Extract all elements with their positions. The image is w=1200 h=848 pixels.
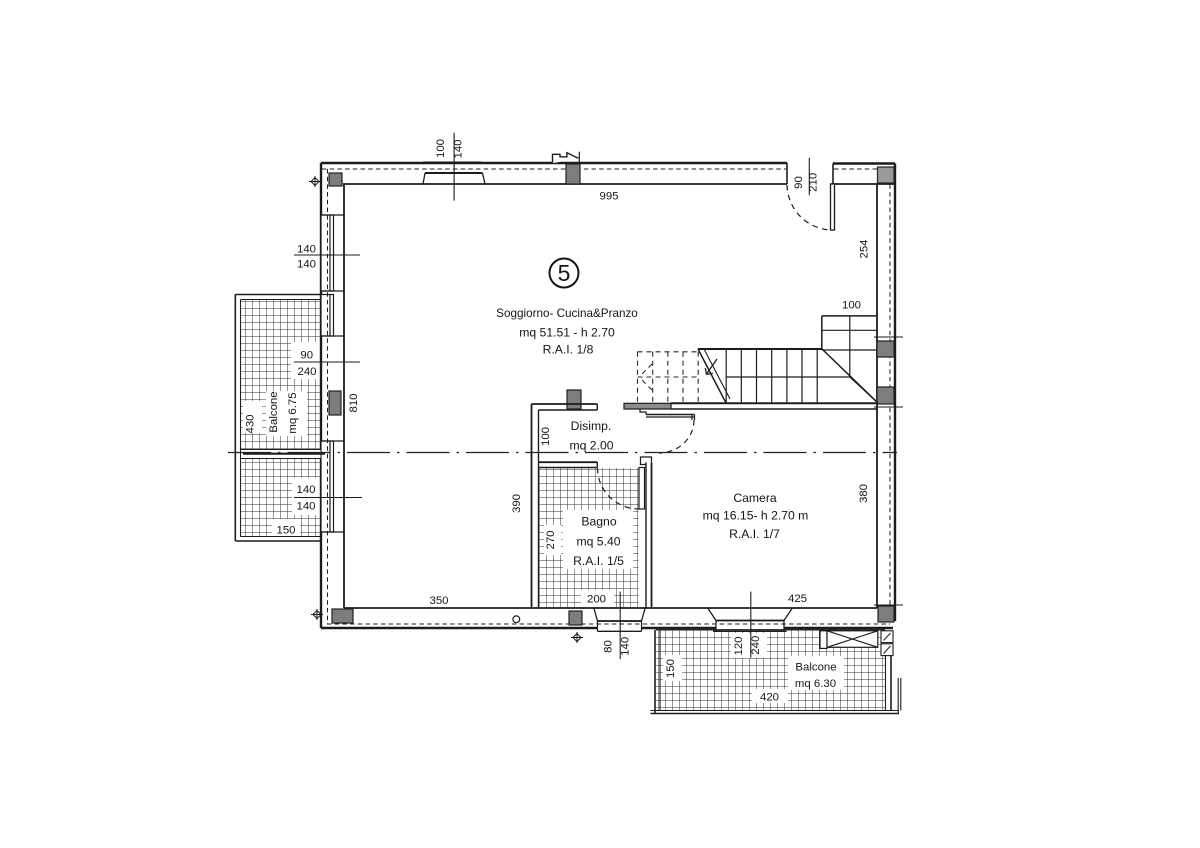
svg-text:240: 240: [750, 636, 762, 655]
svg-text:150: 150: [276, 525, 295, 537]
svg-text:R.A.I. 1/8: R.A.I. 1/8: [543, 343, 594, 357]
svg-text:mq 6.75: mq 6.75: [287, 392, 299, 433]
svg-text:mq 51.51 - h 2.70: mq 51.51 - h 2.70: [519, 326, 615, 340]
svg-text:Bagno: Bagno: [581, 515, 616, 529]
svg-text:380: 380: [858, 484, 870, 503]
svg-text:90: 90: [300, 350, 313, 362]
svg-text:210: 210: [808, 173, 820, 192]
svg-text:140: 140: [297, 244, 316, 256]
svg-text:Soggiorno- Cucina&Pranzo: Soggiorno- Cucina&Pranzo: [496, 307, 638, 320]
svg-text:R.A.I. 1/5: R.A.I. 1/5: [573, 554, 624, 568]
svg-text:140: 140: [620, 637, 632, 656]
svg-text:254: 254: [859, 239, 871, 258]
svg-text:100: 100: [435, 139, 447, 158]
svg-text:140: 140: [296, 484, 315, 496]
svg-text:270: 270: [545, 530, 557, 549]
svg-text:430: 430: [245, 414, 257, 433]
svg-text:mq 6.30: mq 6.30: [795, 678, 836, 690]
svg-text:200: 200: [587, 594, 606, 606]
svg-text:80: 80: [603, 640, 615, 653]
svg-text:140: 140: [453, 139, 465, 158]
svg-text:5: 5: [558, 260, 571, 286]
svg-text:90: 90: [793, 176, 805, 189]
svg-text:810: 810: [348, 393, 360, 412]
svg-text:390: 390: [511, 494, 523, 513]
svg-text:350: 350: [429, 595, 448, 607]
svg-text:150: 150: [665, 659, 677, 678]
svg-text:140: 140: [296, 501, 315, 513]
svg-text:425: 425: [788, 593, 807, 605]
svg-text:140: 140: [297, 259, 316, 271]
svg-text:995: 995: [599, 191, 618, 203]
svg-text:mq 16.15- h 2.70 m: mq 16.15- h 2.70 m: [703, 509, 809, 523]
svg-text:420: 420: [760, 692, 779, 704]
svg-text:100: 100: [540, 427, 552, 446]
svg-text:Balcone: Balcone: [795, 662, 836, 674]
svg-text:100: 100: [842, 300, 861, 312]
svg-text:R.A.I. 1/7: R.A.I. 1/7: [729, 527, 780, 541]
svg-text:Disimp.: Disimp.: [571, 419, 612, 433]
svg-text:240: 240: [297, 366, 316, 378]
svg-text:mq 2.00: mq 2.00: [569, 439, 613, 453]
svg-text:Balcone: Balcone: [268, 391, 280, 432]
svg-text:Camera: Camera: [733, 491, 777, 505]
svg-text:120: 120: [733, 636, 745, 655]
svg-text:mq 5.40: mq 5.40: [576, 535, 620, 549]
